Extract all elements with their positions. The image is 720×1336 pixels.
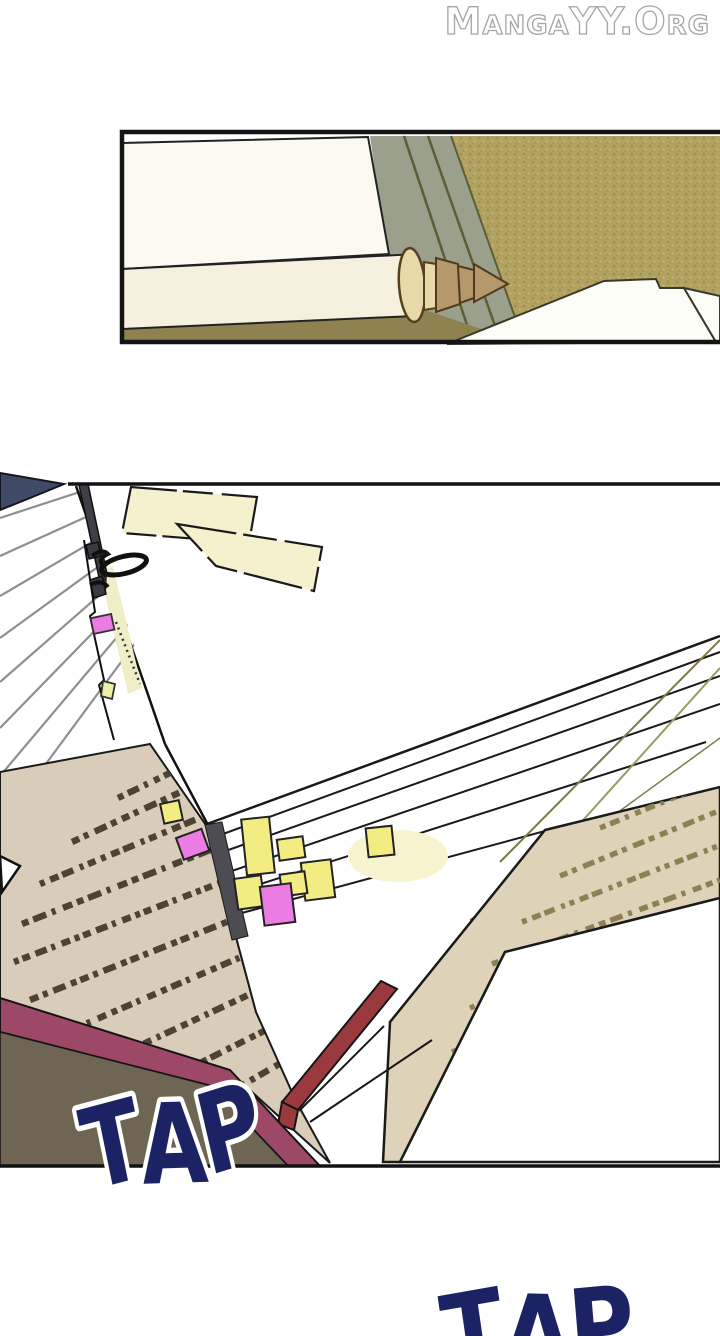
site-logo: MangaYY.Org bbox=[445, 2, 711, 43]
sticky-note-yellow bbox=[277, 836, 306, 860]
scroll-sheet bbox=[122, 137, 389, 269]
sticky-note-magenta bbox=[260, 883, 296, 925]
sticky-note-yellow bbox=[241, 817, 275, 876]
desk-corner-navy bbox=[0, 473, 64, 510]
note-glow bbox=[348, 830, 448, 882]
index-tab-magenta bbox=[91, 614, 115, 634]
sticky-note-yellow bbox=[160, 800, 183, 824]
manga-artwork: TAP TAP bbox=[0, 0, 720, 1336]
index-tab-pale bbox=[101, 681, 115, 699]
sticky-note-yellow bbox=[366, 826, 395, 858]
memo-papers bbox=[122, 487, 322, 591]
manga-page: MangaYY.Org bbox=[0, 0, 720, 1336]
panel-scroll-on-desk bbox=[122, 132, 720, 344]
sfx-tap-bottom: TAP bbox=[434, 1259, 640, 1336]
panel-desk-documents: TAP TAP bbox=[0, 420, 720, 1336]
